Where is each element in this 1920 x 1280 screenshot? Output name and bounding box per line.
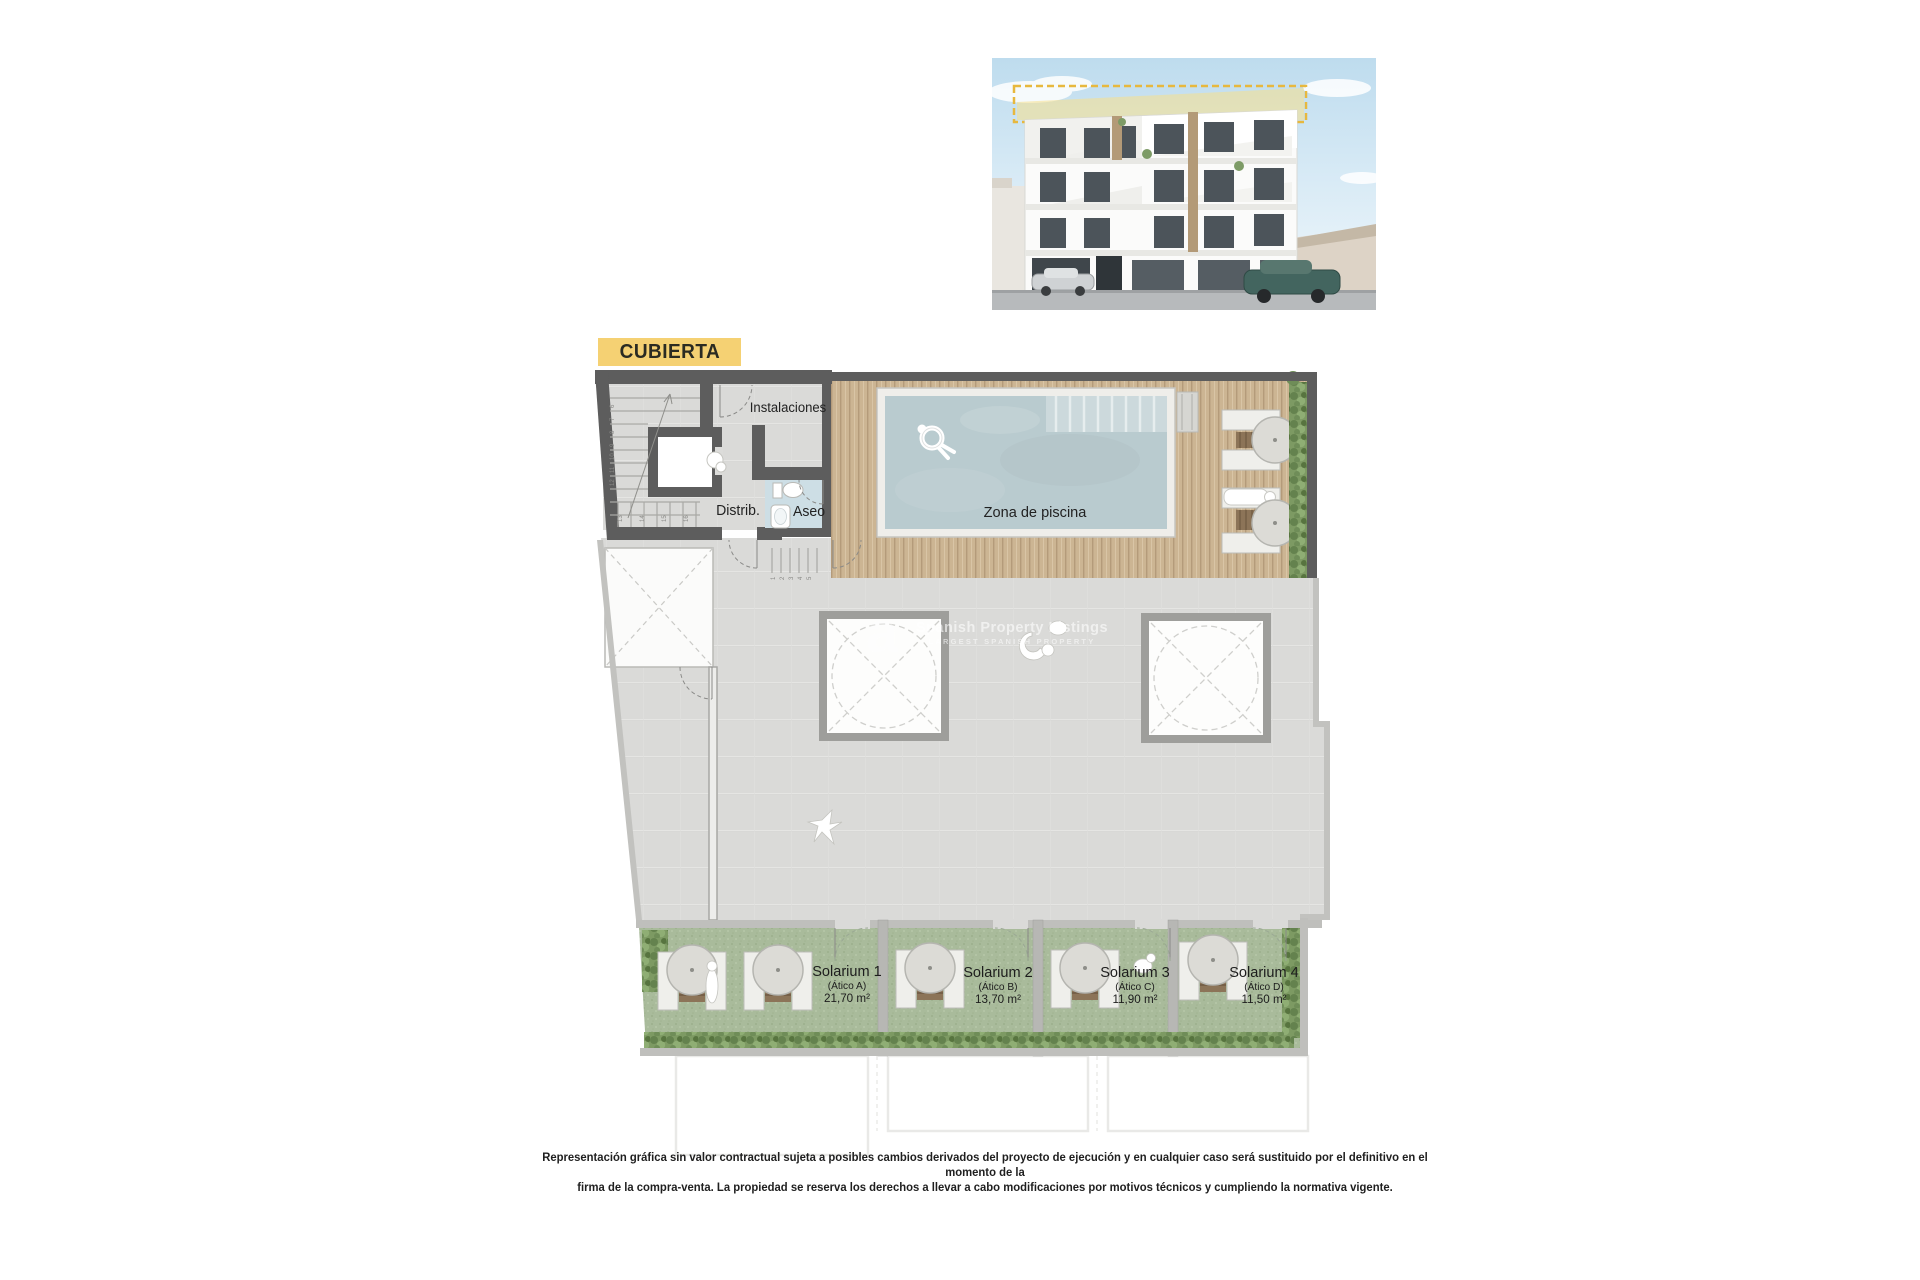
solarium-area: 13,70 m² (935, 993, 1061, 1006)
label-solarium-1: Solarium 1 (Ático A) 21,70 m² (784, 964, 910, 1005)
label-aseo: Aseo (793, 504, 825, 520)
solarium-name: Solarium 4 (1201, 965, 1327, 981)
building (1025, 110, 1297, 294)
watermark-line2: LARGEST SPANISH PROPERTY (882, 637, 1142, 646)
toilet (773, 483, 803, 499)
pool-sun-shelf (1046, 396, 1167, 432)
svg-text:14: 14 (640, 515, 646, 522)
label-distribuidor: Distrib. (716, 503, 760, 519)
elevator-cab (658, 437, 712, 487)
sink (771, 505, 790, 528)
solarium-area: 11,50 m² (1201, 993, 1327, 1006)
building-render-image (992, 58, 1376, 310)
label-solarium-2: Solarium 2 (Ático B) 13,70 m² (935, 965, 1061, 1006)
solarium-name: Solarium 1 (784, 964, 910, 980)
void-dashed-area (605, 548, 713, 667)
page: CUBIERTA (0, 0, 1920, 1280)
watermark: Spanish Property Listings LARGEST SPANIS… (882, 620, 1142, 646)
skylight-right (1145, 617, 1267, 739)
plan-title-highlight: CUBIERTA (598, 338, 741, 366)
solarium-area: 21,70 m² (784, 992, 910, 1005)
svg-text:12: 12 (610, 479, 616, 486)
disclaimer-line1: Representación gráfica sin valor contrac… (529, 1151, 1440, 1181)
solarium-name: Solarium 2 (935, 965, 1061, 981)
neighbor-left (992, 186, 1030, 298)
label-instalaciones: Instalaciones (750, 400, 826, 415)
solarium-area: 11,90 m² (1072, 993, 1198, 1006)
floor-plan: 6 7 8 9 10 11 12 13 14 15 16 1 2 3 4 5 (570, 350, 1370, 1170)
pool-ladder (1177, 392, 1198, 432)
label-solarium-3: Solarium 3 (Ático C) 11,90 m² (1072, 965, 1198, 1006)
deck-hedge (1289, 382, 1310, 578)
disclaimer-line2: firma de la compra-venta. La propiedad s… (529, 1181, 1440, 1196)
person-standing-figure (706, 961, 718, 1003)
svg-text:13: 13 (618, 515, 624, 522)
svg-text:16: 16 (684, 515, 690, 522)
entrance-door (1096, 256, 1122, 294)
plan-title: CUBIERTA (619, 341, 720, 364)
svg-text:11: 11 (610, 466, 616, 473)
label-zona-piscina: Zona de piscina (984, 504, 1087, 521)
solarium-name: Solarium 3 (1072, 965, 1198, 981)
ghost-outline-lower-floor (676, 1056, 1308, 1155)
neighbor-left-roof (992, 178, 1012, 188)
label-solarium-4: Solarium 4 (Ático D) 11,50 m² (1201, 965, 1327, 1006)
svg-text:15: 15 (662, 515, 668, 522)
disclaimer: Representación gráfica sin valor contrac… (529, 1151, 1440, 1196)
svg-text:10: 10 (610, 453, 616, 460)
watermark-line1: Spanish Property Listings (882, 620, 1142, 636)
